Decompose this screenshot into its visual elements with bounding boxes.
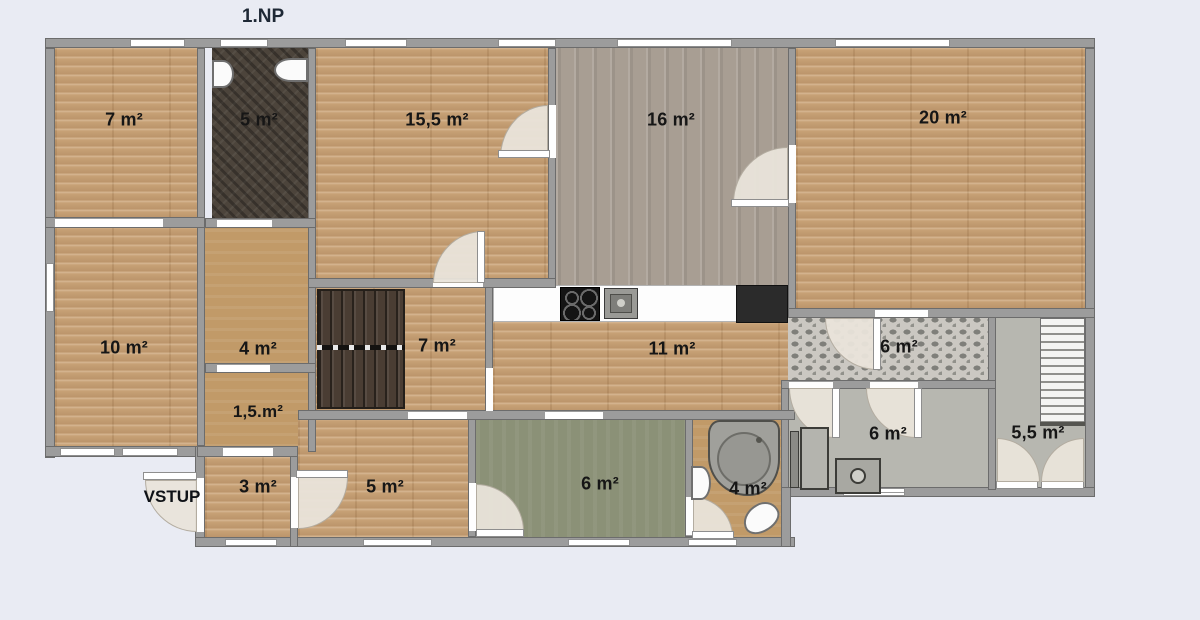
room-label-15-5: 15,5 m² xyxy=(405,110,468,131)
opening xyxy=(217,365,270,372)
opening xyxy=(686,497,693,535)
floor-plan: 1.NP VSTUP 7 m² 5 m² 15,5 m² 16 m² 20 m²… xyxy=(0,0,1200,620)
room-label-5-bath: 5 m² xyxy=(240,110,278,131)
door-threshold xyxy=(996,481,1038,489)
washer-door xyxy=(850,468,866,484)
window xyxy=(130,39,185,47)
opening xyxy=(291,477,298,528)
floor-corridor-11 xyxy=(493,322,788,414)
room-label-6-tiled: 6 m² xyxy=(880,337,918,358)
door-leaf xyxy=(731,199,789,207)
floor-room-3 xyxy=(205,457,290,538)
wall-h5 xyxy=(308,278,556,288)
room-label-1-5: 1,5.m² xyxy=(233,402,283,422)
wall-v9 xyxy=(988,312,996,490)
window xyxy=(225,539,277,546)
door-leaf xyxy=(832,388,840,438)
boiler-panel xyxy=(790,431,799,488)
door-leaf xyxy=(477,231,485,283)
opening xyxy=(408,412,467,419)
room-label-20: 20 m² xyxy=(919,108,967,129)
window xyxy=(568,539,630,546)
floor-room-20 xyxy=(796,48,1085,309)
floor-room-15-5 xyxy=(316,48,548,279)
floor-title: 1.NP xyxy=(242,6,284,28)
room-label-5: 5 m² xyxy=(366,477,404,498)
window xyxy=(363,539,432,546)
room-label-3: 3 m² xyxy=(239,477,277,498)
boiler-symbol xyxy=(800,427,829,490)
wall-v4 xyxy=(548,48,556,285)
window xyxy=(60,448,115,456)
window xyxy=(46,263,54,312)
opening xyxy=(875,310,928,317)
bathtub-drain xyxy=(756,437,762,443)
window xyxy=(345,39,407,47)
door-leaf xyxy=(692,531,734,539)
window xyxy=(122,448,178,456)
room-label-4-bath: 4 m² xyxy=(729,479,767,500)
opening xyxy=(469,483,476,531)
wall-left xyxy=(45,48,55,458)
opening xyxy=(55,219,163,227)
opening xyxy=(789,145,796,203)
wall-v2 xyxy=(308,48,316,452)
room-label-6-util: 6 m² xyxy=(869,424,907,445)
door-leaf xyxy=(498,150,550,158)
door-leaf xyxy=(143,472,197,480)
wall-v1 xyxy=(197,48,205,446)
wall-right xyxy=(1085,48,1095,497)
entrance-label: VSTUP xyxy=(144,487,201,507)
wardrobe-divider xyxy=(317,345,405,350)
kitchen-sink-drain xyxy=(617,299,625,307)
sink-symbol xyxy=(212,60,234,88)
room-label-4: 4 m² xyxy=(239,339,277,360)
door-leaf xyxy=(476,529,524,537)
room-label-7-top: 7 m² xyxy=(105,110,143,131)
opening xyxy=(549,105,556,158)
floor-room-7-top xyxy=(55,48,197,218)
window xyxy=(617,39,732,47)
wall-step xyxy=(781,487,791,547)
opening xyxy=(545,412,603,419)
staircase-symbol xyxy=(1040,318,1085,426)
cooktop-symbol xyxy=(560,287,600,321)
room-label-7-mid: 7 m² xyxy=(418,336,456,357)
door-threshold xyxy=(1041,481,1084,489)
door-leaf xyxy=(914,388,922,438)
opening xyxy=(217,220,272,227)
room-label-6-green: 6 m² xyxy=(581,474,619,495)
room-label-16: 16 m² xyxy=(647,110,695,131)
fridge-symbol xyxy=(736,285,788,323)
door-leaf xyxy=(296,470,348,478)
room-label-11: 11 m² xyxy=(648,339,695,360)
wall-v10 xyxy=(781,380,789,488)
window xyxy=(835,39,950,47)
opening xyxy=(223,448,273,456)
toilet-symbol xyxy=(274,58,308,82)
room-label-5-5-stairs: 5,5 m² xyxy=(1011,423,1064,444)
sink-symbol xyxy=(691,466,711,500)
room-label-10: 10 m² xyxy=(100,338,148,359)
wall-h8 xyxy=(788,308,1095,318)
window xyxy=(688,539,737,546)
window xyxy=(498,39,556,47)
window xyxy=(220,39,268,47)
opening xyxy=(486,368,493,411)
